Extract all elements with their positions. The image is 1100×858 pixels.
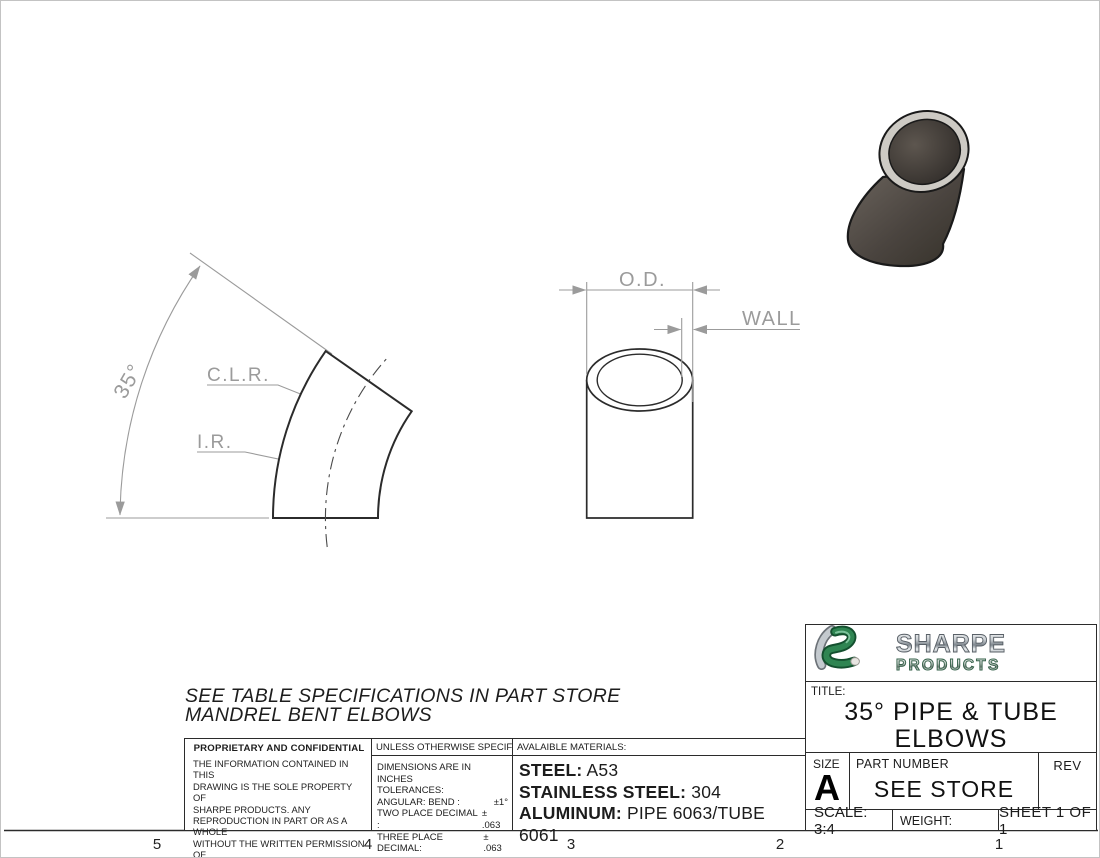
elbow-outline — [273, 351, 412, 518]
wall-label: WALL — [742, 308, 802, 330]
tolerance-row: TWO PLACE DECIMAL : ± .063 — [377, 808, 508, 831]
title-block: SHARPE PRODUCTS TITLE: 35° PIPE & TUBE E… — [805, 624, 1097, 831]
ir-label: I.R. — [197, 432, 233, 453]
title-label: TITLE: — [811, 686, 846, 698]
proprietary-block: PROPRIETARY AND CONFIDENTIAL THE INFORMA… — [184, 738, 373, 831]
sheet-cell: SHEET 1 OF 1 — [999, 810, 1096, 831]
zone-number: 3 — [567, 836, 575, 853]
size-cell: SIZE A — [806, 753, 850, 809]
brand-subname: PRODUCTS — [896, 658, 1006, 674]
tolerance-units: DIMENSIONS ARE IN INCHES — [377, 762, 508, 785]
tolerance-row: ANGULAR: BEND : ±1° — [377, 797, 508, 809]
materials-header: AVALAIBLE MATERIALS: — [513, 739, 806, 756]
proprietary-text: THE INFORMATION CONTAINED IN THIS DRAWIN… — [193, 758, 365, 858]
zone-number: 4 — [364, 836, 372, 853]
tolerance-row: THREE PLACE DECIMAL: ± .063 — [377, 832, 508, 855]
materials-block: AVALAIBLE MATERIALS: STEEL: A53 STAINLES… — [512, 738, 807, 831]
drawing-title: 35° PIPE & TUBE ELBOWS — [806, 699, 1096, 753]
rev-label: REV — [1039, 753, 1096, 773]
clr-label: C.L.R. — [207, 365, 270, 386]
zone-number: 1 — [995, 836, 1003, 853]
brand-name: SHARPE — [896, 632, 1006, 657]
angled-extension — [190, 253, 332, 354]
title-row: TITLE: 35° PIPE & TUBE ELBOWS — [806, 682, 1096, 753]
material-item: STAINLESS STEEL: 304 — [519, 782, 802, 804]
tolerance-block: UNLESS OTHERWISE SPECIFIED: DIMENSIONS A… — [371, 738, 513, 831]
brand-logo: SHARPE PRODUCTS — [806, 625, 1096, 682]
zone-number: 2 — [776, 836, 784, 853]
od-label: O.D. — [619, 269, 666, 291]
note-line-2: MANDREL BENT ELBOWS — [185, 706, 620, 725]
tolerance-text: DIMENSIONS ARE IN INCHES TOLERANCES: ANG… — [372, 756, 512, 855]
sharpe-pipe-icon — [806, 625, 864, 671]
brand-text: SHARPE PRODUCTS — [896, 632, 1006, 674]
part-number-value: SEE STORE — [850, 776, 1038, 803]
general-note: SEE TABLE SPECIFICATIONS IN PART STORE M… — [185, 687, 620, 725]
part-number-cell: PART NUMBER SEE STORE — [850, 753, 1039, 809]
scale-weight-sheet-row: SCALE: 3:4 WEIGHT: SHEET 1 OF 1 — [806, 809, 1096, 831]
elbow-3d-render — [848, 100, 979, 267]
size-part-rev-row: SIZE A PART NUMBER SEE STORE REV — [806, 753, 1096, 809]
tube-outer-ellipse — [587, 349, 693, 411]
material-item: STEEL: A53 — [519, 760, 802, 782]
tolerance-header: UNLESS OTHERWISE SPECIFIED: — [372, 739, 512, 756]
scale-cell: SCALE: 3:4 — [806, 810, 893, 831]
drawing-sheet: 35° C.L.R. I.R. O.D. WALL — [0, 0, 1100, 858]
materials-list: STEEL: A53 STAINLESS STEEL: 304 ALUMINUM… — [513, 756, 806, 846]
part-number-label: PART NUMBER — [850, 753, 1038, 771]
rev-cell: REV — [1039, 753, 1096, 809]
tube-view — [587, 349, 693, 518]
material-item: ALUMINUM: PIPE 6063/TUBE 6061 — [519, 803, 802, 846]
zone-number: 5 — [153, 836, 161, 853]
tolerance-title: TOLERANCES: — [377, 785, 508, 797]
weight-cell: WEIGHT: — [893, 810, 999, 831]
proprietary-header: PROPRIETARY AND CONFIDENTIAL — [193, 743, 365, 754]
